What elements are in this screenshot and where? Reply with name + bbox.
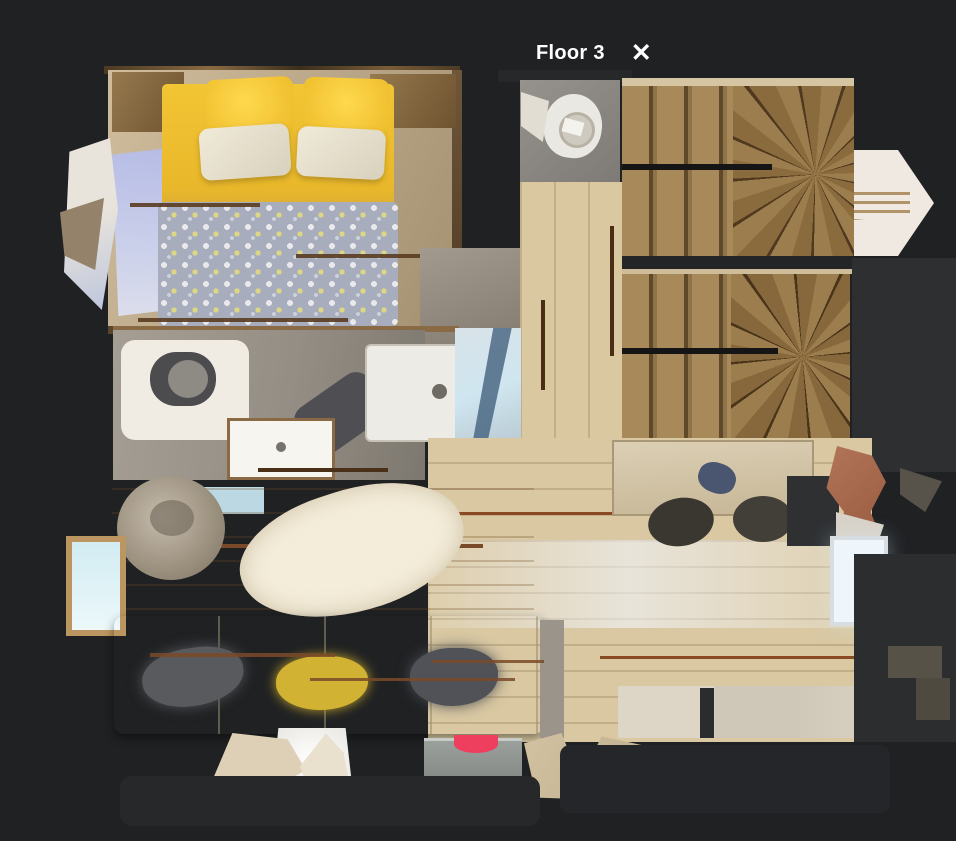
pouf xyxy=(150,500,194,536)
scan-artifact xyxy=(130,203,260,207)
stair-treads xyxy=(622,86,743,256)
dining-chair xyxy=(733,496,793,542)
scan-artifact xyxy=(610,226,614,356)
bay-window xyxy=(854,186,910,220)
wall-band xyxy=(618,686,872,738)
shower-drain xyxy=(432,384,447,399)
floorplan-viewer: Floor 3 ✕ xyxy=(0,0,956,841)
staircase-lower xyxy=(622,274,850,440)
scan-fragment xyxy=(888,646,942,678)
stair-winder xyxy=(733,86,854,256)
stair-treads xyxy=(622,274,741,440)
closet xyxy=(438,180,520,254)
close-icon[interactable]: ✕ xyxy=(631,41,652,66)
stair-railing xyxy=(622,348,778,354)
scan-artifact xyxy=(310,678,515,681)
pillow xyxy=(198,123,291,181)
scan-artifact xyxy=(541,300,545,390)
stair-ledge xyxy=(622,78,854,86)
bed-blanket xyxy=(158,202,398,326)
toilet-bowl xyxy=(168,360,208,398)
scan-artifact xyxy=(138,318,348,322)
red-object xyxy=(454,735,498,753)
scan-artifact xyxy=(600,656,865,659)
pillow xyxy=(296,126,386,181)
hallway-floor xyxy=(520,182,622,472)
wall-band xyxy=(700,688,714,738)
scan-artifact xyxy=(150,653,335,657)
stair-railing xyxy=(622,164,772,170)
floor-shadow xyxy=(120,776,540,826)
scan-artifact xyxy=(432,660,544,663)
floor-title: Floor 3 xyxy=(536,42,605,65)
stair-winder xyxy=(731,274,850,440)
floor-header: Floor 3 ✕ xyxy=(536,38,652,68)
staircase-upper xyxy=(622,86,854,256)
side-table xyxy=(540,620,564,738)
faucet xyxy=(276,442,286,452)
scan-fragment xyxy=(916,678,950,720)
floor-shadow xyxy=(560,745,890,813)
